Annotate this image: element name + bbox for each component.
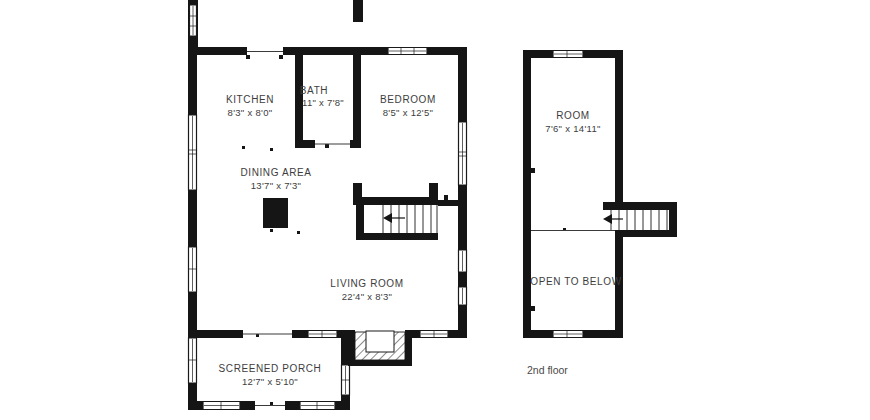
floor1-stair-direction-arrow-icon	[383, 213, 405, 223]
floor1-window-muntins	[189, 6, 466, 409]
chimney-block	[263, 198, 288, 228]
floor2-plan: ROOM 7'6" x 14'11" OPEN TO BELOW 2nd flo…	[523, 50, 677, 376]
floor2-stair-direction-arrow-icon	[603, 214, 623, 224]
screened-porch-label: SCREENED PORCH	[219, 363, 322, 374]
floor1-window-frames	[189, 5, 467, 410]
bedroom-label: BEDROOM	[380, 94, 436, 105]
bath-label: BATH	[300, 85, 328, 96]
floor1-walls	[188, 0, 467, 410]
floor2-stair-treads	[611, 210, 667, 230]
floor2-dimension-ticks	[531, 168, 566, 311]
floor2-walls	[523, 50, 677, 338]
kitchen-dims: 8'3" x 8'0"	[228, 107, 273, 118]
screened-porch-dims: 12'7" x 5'10"	[242, 376, 298, 387]
open-to-below-label: OPEN TO BELOW	[530, 276, 621, 287]
bedroom-dims: 8'5" x 12'5"	[383, 107, 433, 118]
living-room-label: LIVING ROOM	[330, 278, 403, 289]
bath-dims: 11" x 7'8"	[302, 97, 344, 108]
dining-area-dims: 13'7" x 7'3"	[251, 180, 301, 191]
fireplace	[348, 330, 412, 366]
room-dims: 7'6" x 14'11"	[545, 123, 600, 134]
second-floor-caption: 2nd floor	[527, 364, 568, 376]
floor2-window-frames	[553, 51, 583, 338]
floor-plan-canvas: KITCHEN 8'3" x 8'0" BATH 11" x 7'8" BEDR…	[0, 0, 870, 420]
fireplace-firebox	[366, 331, 394, 352]
floor1-plan: KITCHEN 8'3" x 8'0" BATH 11" x 7'8" BEDR…	[188, 0, 467, 410]
floor2-window-muntins	[554, 51, 582, 337]
living-room-dims: 22'4" x 8'3"	[342, 291, 392, 302]
floor-plan-page: KITCHEN 8'3" x 8'0" BATH 11" x 7'8" BEDR…	[0, 0, 870, 420]
kitchen-label: KITCHEN	[226, 94, 274, 105]
room-label: ROOM	[556, 110, 590, 121]
dining-area-label: DINING AREA	[240, 167, 311, 178]
